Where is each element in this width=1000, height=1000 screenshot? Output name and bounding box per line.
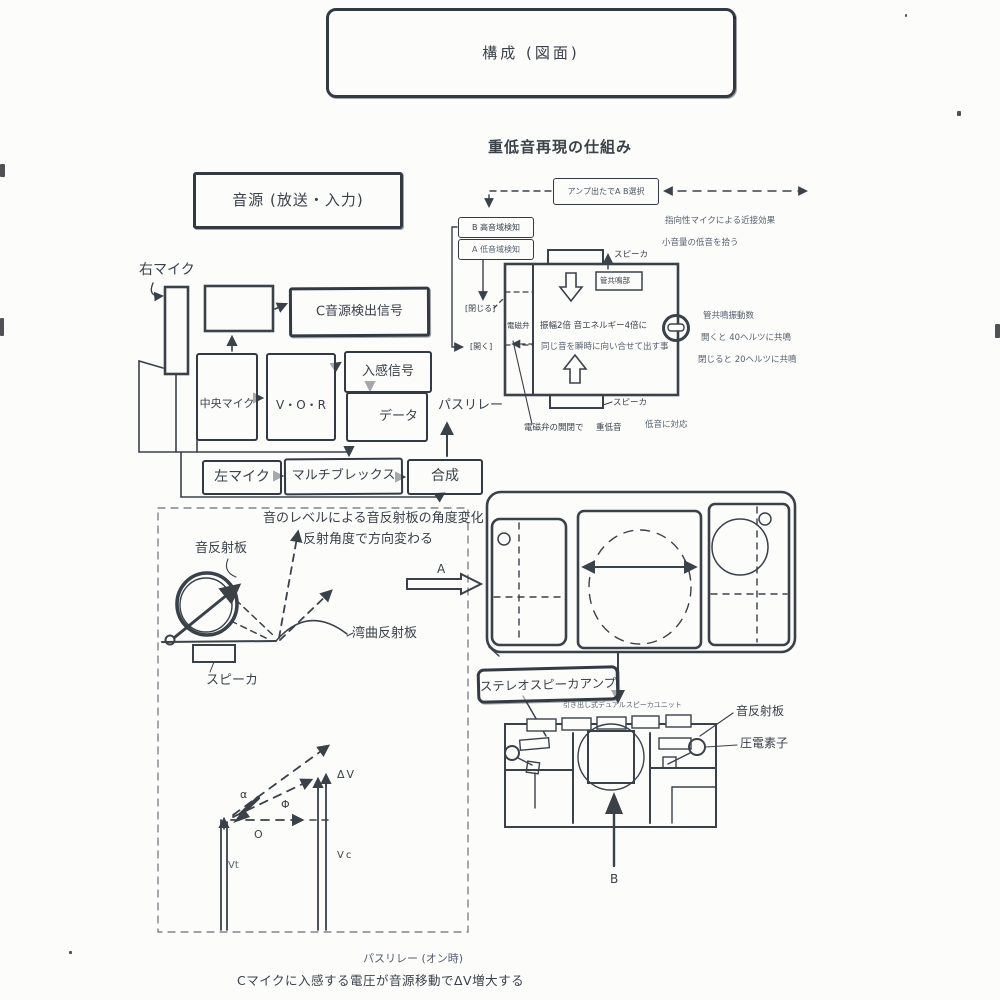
amp-select-label: アンプ出たでA B選択	[568, 187, 645, 197]
c-signal-box: C音源検出信号	[289, 287, 430, 338]
unit-slot-4	[632, 716, 659, 728]
unit-left-reflector-bar	[520, 738, 550, 750]
reflector-speaker-label: スピーカ	[206, 673, 258, 689]
solenoid-valve-label: 電磁弁	[507, 321, 530, 330]
pass-relay-label: パスリレー	[438, 398, 503, 414]
unit-slot-3	[597, 717, 626, 729]
hollow-arrow-up	[564, 355, 586, 383]
delta-v-label: ΔV	[337, 768, 356, 782]
stereo-amp-box: ステレオスピーカアンプ	[477, 665, 620, 704]
scanned-diagram-sheet: 構成 (図面) 重低音再現の仕組み 音源 (放送・入力) 右マイク C音源検出信…	[0, 0, 1000, 1000]
scan-speckle	[0, 318, 4, 336]
left-mic-label: 左マイク	[214, 469, 270, 487]
device-right-circle	[712, 519, 768, 575]
vor-box: V・O・R	[266, 353, 336, 441]
reflector-caption-2: 反射角度で方向変わる	[303, 532, 433, 548]
bus-to-multiplex	[139, 452, 349, 455]
detect-low-label: A 低音域検知	[472, 245, 520, 255]
data-box: データ	[346, 392, 428, 442]
page-title: 構成 (図面)	[482, 44, 579, 63]
detect-high-label: B 高音域検知	[472, 223, 520, 233]
unit-slot-5	[666, 715, 691, 727]
dashed-arrow-shallow	[280, 591, 331, 640]
detector-box-unlabeled	[205, 286, 273, 331]
device-mid-dashed-circle	[589, 530, 691, 644]
device-left-panel	[492, 519, 566, 645]
unit-center-square	[588, 731, 634, 783]
multiplex-box: マルチブレックス	[284, 458, 403, 496]
arrow-a-label: A	[437, 562, 445, 577]
resonance-closed-note: 閉じると 20ヘルツに共鳴	[698, 355, 797, 366]
reflector-rod-arrow	[175, 586, 238, 637]
cabinet-top-duct	[548, 250, 603, 264]
incoming-signal-label: 入感信号	[362, 364, 414, 380]
arrow-b-label: B	[610, 872, 618, 887]
hollow-arrow-a	[407, 574, 481, 594]
subtitle: 重低音再現の仕組み	[488, 138, 632, 157]
device-outline	[487, 492, 795, 652]
device-mid-panel	[578, 511, 701, 648]
reflector-speaker-box	[193, 645, 235, 662]
curved-reflector-arc	[276, 621, 347, 641]
dashed-ray-2	[231, 621, 270, 640]
source-box: 音源 (放送・入力)	[193, 172, 403, 229]
port-slot	[668, 324, 684, 331]
unit-right-linkage	[668, 753, 690, 764]
unit-reflector-label: 音反射板	[736, 704, 784, 719]
device-right-panel	[709, 504, 789, 645]
curved-reflector-label: 湾曲反射板	[352, 626, 417, 642]
arrow-to-c-signal	[275, 304, 286, 309]
data-label: データ	[379, 409, 418, 425]
pass-relay-on-note: パスリレー (オン時)	[363, 952, 463, 966]
phi-label: Φ	[281, 798, 290, 812]
alpha-label: α	[240, 788, 247, 802]
open-label: [開く]	[470, 342, 492, 352]
pipe-resonator-label: 管共鳴部	[600, 276, 630, 285]
stereo-amp-label: ステレオスピーカアンプ	[480, 675, 617, 694]
scan-speckle	[957, 111, 961, 116]
source-box-label: 音源 (放送・入力)	[232, 191, 363, 210]
scan-speckle	[733, 16, 736, 19]
right-mic-label: 右マイク	[139, 262, 195, 280]
device-right-knob	[759, 513, 771, 525]
sound-reflector-label: 音反射板	[195, 541, 247, 557]
dashed-arrow-amp-to-detector	[489, 191, 551, 206]
vt-label: Vt	[228, 860, 239, 873]
dashed-arrow-steep	[279, 532, 298, 638]
unit-left-piezo	[505, 746, 519, 760]
scan-speckle	[0, 164, 5, 177]
cabinet-bottom-duct	[550, 395, 603, 408]
dashed-close-to-valve	[494, 297, 505, 308]
dashed-ray-1	[236, 600, 274, 636]
close-label: [閉じる]	[465, 304, 495, 314]
unit-slot-1	[527, 719, 556, 731]
rod-pivot-circle	[166, 636, 175, 645]
reflector-base-line	[162, 641, 276, 642]
pointer-speaker-bottom	[603, 402, 612, 405]
line-left-bus	[139, 361, 163, 452]
pointer-sound-reflector	[226, 559, 236, 577]
reflector-ball-inner	[180, 578, 232, 632]
compose-label: 合成	[431, 468, 459, 486]
detect-high-box: B 高音域検知	[458, 217, 534, 238]
multiplex-label: マルチブレックス	[292, 468, 396, 485]
compose-box: 合成	[407, 459, 483, 495]
scan-speckle	[905, 14, 907, 17]
unit-slot-2	[562, 718, 591, 730]
detect-low-box: A 低音域検知	[458, 239, 534, 260]
amp-select-box: アンプ出たでA B選択	[553, 178, 659, 205]
arrow-b-head	[605, 792, 623, 814]
resonance-title: 管共鳴振動数	[703, 311, 754, 322]
unit-right-reflector-bar	[659, 738, 691, 749]
simultaneous-note: 同じ音を瞬時に向い合せて出す事	[541, 342, 669, 353]
hollow-arrow-down	[560, 273, 582, 301]
pointer-valvenote	[513, 341, 532, 424]
title-box: 構成 (図面)	[326, 8, 736, 98]
reflector-ball-outer	[177, 573, 237, 635]
proximity-note: 指向性マイクによる近接効果	[665, 216, 775, 227]
deep-bass-label: 重低音	[596, 423, 622, 434]
unit-caption: 引き出し式デュアルスピーカユニット	[563, 701, 682, 710]
left-mic-box: 左マイク	[202, 460, 282, 495]
bass-support-label: 低音に対応	[645, 420, 688, 431]
origin-label: O	[254, 828, 263, 842]
scan-speckle	[69, 951, 72, 954]
footer-note: Cマイクに入感する電圧が音源移動でΔV増大する	[237, 973, 524, 989]
small-volume-note: 小音量の低音を拾う	[662, 238, 739, 249]
pointer-reflector-speaker	[210, 662, 214, 672]
vor-label: V・O・R	[276, 398, 326, 413]
speaker-bottom-label: スピーカ	[613, 398, 647, 409]
right-mic-hook-arrow	[151, 283, 162, 296]
valve-note: 電磁弁の開閉で	[524, 423, 584, 434]
right-mic-body	[165, 287, 188, 374]
unit-piezo-label: 圧電素子	[740, 736, 788, 751]
amplitude-note: 振幅2倍 音エネルギー4倍に	[540, 321, 647, 332]
c-signal-label: C音源検出信号	[316, 304, 403, 321]
center-mic-label: 中央マイク	[200, 397, 255, 411]
device-left-knob	[498, 533, 510, 545]
reflector-caption-1: 音のレベルによる音反射板の角度変化	[263, 511, 484, 527]
speaker-top-label: スピーカ	[614, 250, 648, 261]
vc-label: Vc	[337, 850, 353, 863]
pointer-unit-piezo	[706, 745, 737, 747]
scan-speckle	[995, 324, 1000, 338]
center-mic-box: 中央マイク	[196, 353, 258, 441]
resonance-open-note: 開くと 40ヘルツに共鳴	[701, 333, 791, 344]
incoming-signal-box: 入感信号	[344, 351, 432, 393]
